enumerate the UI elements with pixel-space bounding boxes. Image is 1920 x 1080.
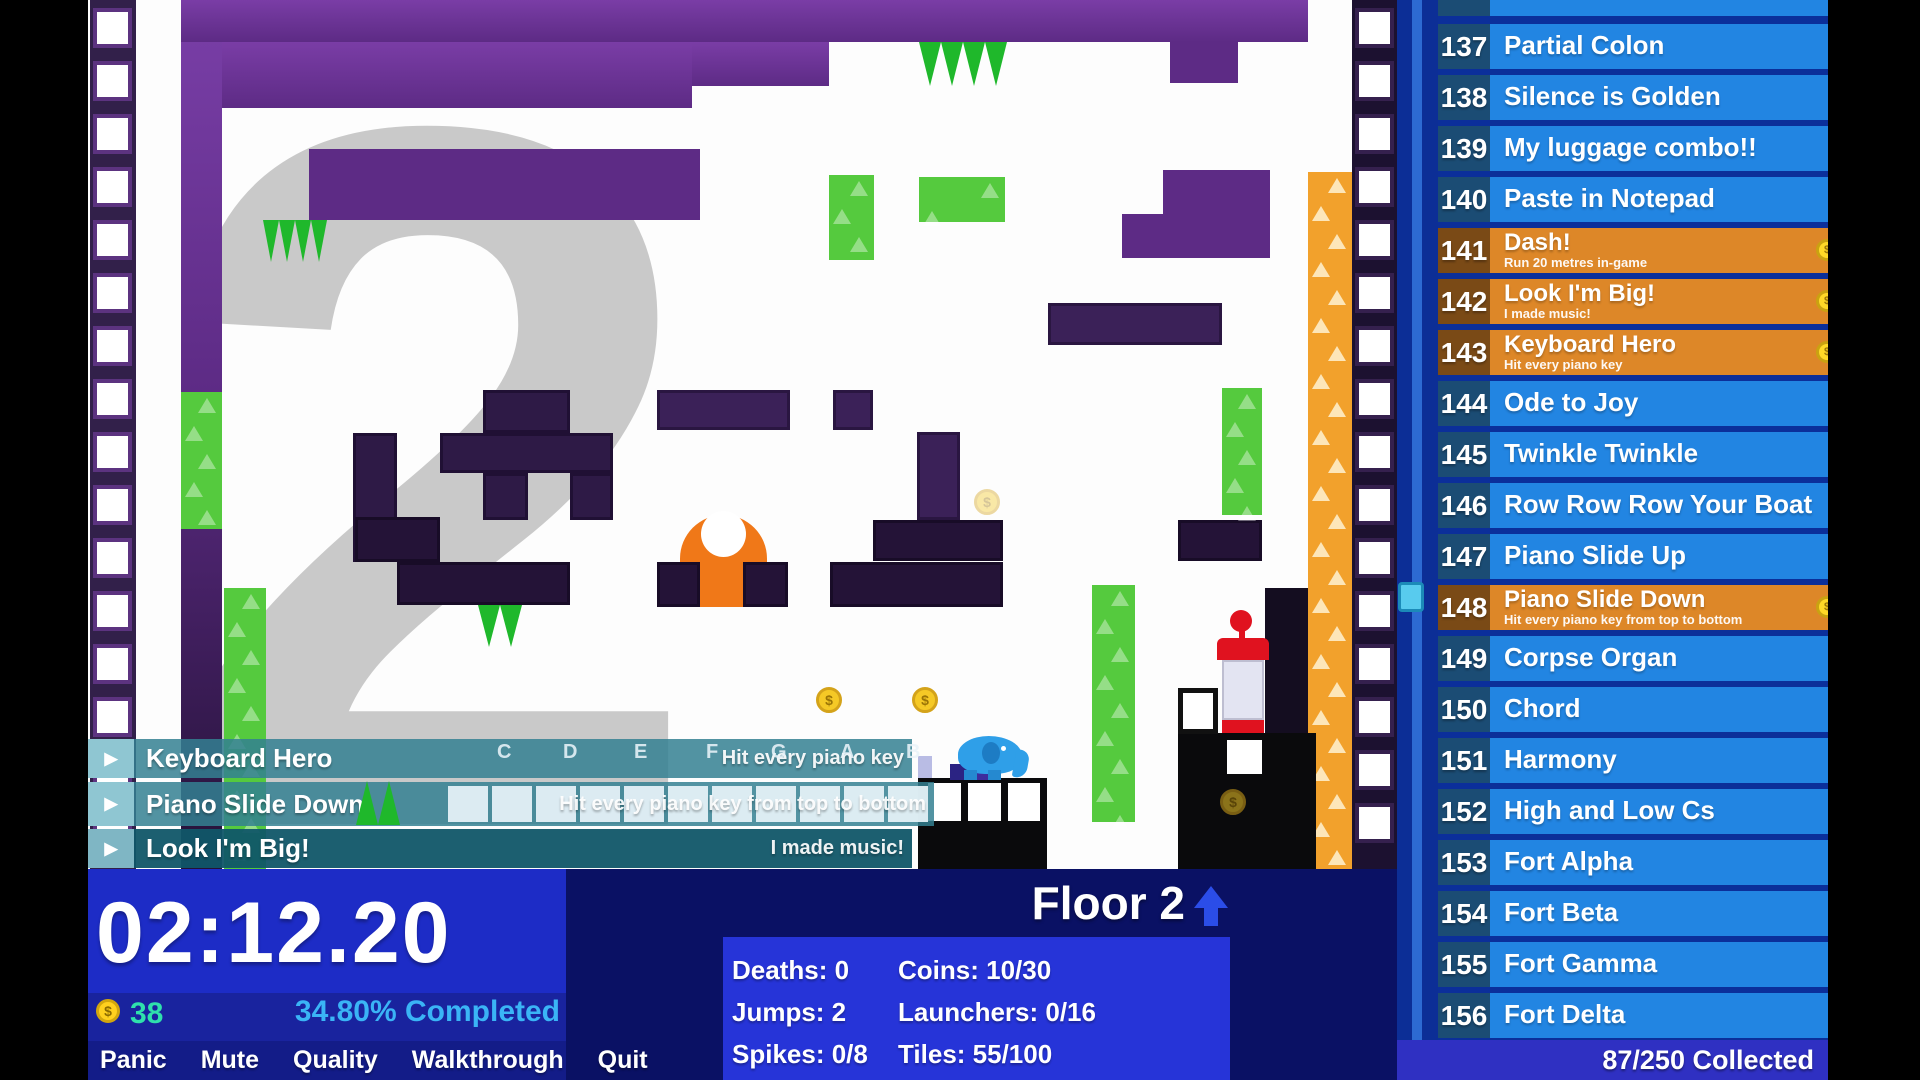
green-pad xyxy=(181,392,222,529)
coin-icon: $ xyxy=(1816,239,1828,261)
achievement-banner: ▶ Piano Slide Down Hit every piano key f… xyxy=(88,782,934,826)
tile xyxy=(1355,803,1394,843)
achievement-number: 148 xyxy=(1438,585,1490,630)
achievement-row[interactable]: 149Corpse Organ xyxy=(1438,636,1828,681)
stat-value: Spikes: 0/8 xyxy=(732,1039,868,1070)
achievement-title: High and Low Cs xyxy=(1504,795,1715,826)
stat-value: Tiles: 55/100 xyxy=(898,1039,1052,1070)
achievement-number: 146 xyxy=(1438,483,1490,528)
platform xyxy=(743,562,788,607)
achievement-title: Silence is Golden xyxy=(1504,81,1721,112)
platform xyxy=(309,149,700,220)
tile xyxy=(1355,61,1394,101)
achievement-row[interactable]: 155Fort Gamma xyxy=(1438,942,1828,987)
achievement-number: 156 xyxy=(1438,993,1490,1038)
piano-letter: A xyxy=(840,741,854,764)
achievement-title: Fort Gamma xyxy=(1504,948,1657,979)
green-pad xyxy=(1092,585,1135,822)
plunger-cap xyxy=(1217,638,1269,660)
stat-value: Coins: 10/30 xyxy=(898,955,1051,986)
achievement-number: 137 xyxy=(1438,24,1490,69)
platform xyxy=(830,562,1003,607)
achievement-banner: ▶ Look I'm Big! I made music! xyxy=(88,829,912,868)
tile xyxy=(93,644,132,684)
achievement-row[interactable]: 150Chord xyxy=(1438,687,1828,732)
achievement-number: 152 xyxy=(1438,789,1490,834)
achievement-row[interactable]: 141Dash!Run 20 metres in-game$ xyxy=(1438,228,1828,273)
achievement-title: Look I'm Big! xyxy=(1504,280,1655,308)
platform xyxy=(440,433,613,473)
platform xyxy=(873,520,1003,561)
tile xyxy=(1355,273,1394,313)
menu-item-panic[interactable]: Panic xyxy=(100,1046,167,1075)
spike xyxy=(311,220,327,262)
statue-head xyxy=(701,511,746,557)
tile xyxy=(1355,485,1394,525)
stat-value: Deaths: 0 xyxy=(732,955,849,986)
tile xyxy=(1355,697,1394,737)
spike xyxy=(941,42,963,86)
stat-value: Jumps: 2 xyxy=(732,997,846,1028)
coin-icon: $ xyxy=(1816,596,1828,618)
platform xyxy=(657,390,790,430)
piano-letter: D xyxy=(563,741,577,764)
play-icon: ▶ xyxy=(88,739,134,778)
menu-item-quit[interactable]: Quit xyxy=(598,1046,648,1075)
achievement-number: 140 xyxy=(1438,177,1490,222)
achievement-number: 154 xyxy=(1438,891,1490,936)
tile xyxy=(93,326,132,366)
letterbox-right xyxy=(1828,0,1920,1080)
achievement-title: Partial Colon xyxy=(1504,30,1664,61)
green-pad xyxy=(224,588,266,869)
platform xyxy=(1170,42,1238,83)
banner-desc: Hit every piano key xyxy=(722,747,904,770)
tile xyxy=(93,379,132,419)
piano-key xyxy=(492,786,532,822)
spike xyxy=(295,220,311,262)
tile xyxy=(1227,740,1262,774)
floor-up-arrow-icon xyxy=(1194,886,1228,908)
achievement-number: 153 xyxy=(1438,840,1490,885)
floor-up-arrow-icon xyxy=(1204,908,1218,926)
coin: $ xyxy=(816,687,842,713)
achievement-row[interactable]: 140Paste in Notepad xyxy=(1438,177,1828,222)
platform xyxy=(570,473,613,520)
achievement-row-partial xyxy=(1438,0,1828,16)
achievement-row[interactable]: 153Fort Alpha xyxy=(1438,840,1828,885)
achievement-desc: I made music! xyxy=(1504,306,1591,321)
platform xyxy=(181,0,1308,42)
achievement-number: 138 xyxy=(1438,75,1490,120)
green-pad xyxy=(1222,388,1262,515)
tile-strip-right xyxy=(1352,0,1397,869)
green-pad xyxy=(919,177,1005,222)
banner-title: Keyboard Hero xyxy=(146,743,332,774)
tile xyxy=(93,61,132,101)
achievement-row[interactable]: 142Look I'm Big!I made music!$ xyxy=(1438,279,1828,324)
tile xyxy=(1355,167,1394,207)
tile xyxy=(1355,591,1394,631)
letterbox-left xyxy=(0,0,88,1080)
achievement-number: 149 xyxy=(1438,636,1490,681)
achievement-title: Twinkle Twinkle xyxy=(1504,438,1698,469)
elephant-leg xyxy=(988,770,1001,780)
menu-item-walkthrough[interactable]: Walkthrough xyxy=(412,1046,564,1075)
achievement-title: Fort Beta xyxy=(1504,897,1618,928)
banner-desc: I made music! xyxy=(771,837,904,860)
elephant-ear xyxy=(982,742,1000,764)
achievement-title: Paste in Notepad xyxy=(1504,183,1715,214)
tile xyxy=(1355,538,1394,578)
tile xyxy=(1355,644,1394,684)
spike xyxy=(919,42,941,86)
achievement-title: Keyboard Hero xyxy=(1504,331,1676,359)
spike xyxy=(500,605,522,647)
piano-letter: F xyxy=(706,741,718,764)
tile xyxy=(1355,379,1394,419)
achievement-row[interactable]: 152High and Low Cs xyxy=(1438,789,1828,834)
coin-collected: $ xyxy=(974,489,1000,515)
platform xyxy=(692,42,829,86)
achievement-row[interactable]: 147Piano Slide Up xyxy=(1438,534,1828,579)
achievement-title: Row Row Row Your Boat xyxy=(1504,489,1812,520)
spike xyxy=(279,220,295,262)
coin-count: 38 xyxy=(130,997,163,1031)
plunger-body xyxy=(1222,660,1264,720)
achievement-title: Ode to Joy xyxy=(1504,387,1638,418)
achievement-number: 142 xyxy=(1438,279,1490,324)
plunger-ball xyxy=(1230,610,1252,632)
banner-desc: Hit every piano key from top to bottom xyxy=(559,793,926,816)
platform xyxy=(355,517,440,562)
coin-icon: $ xyxy=(1816,341,1828,363)
green-pad xyxy=(829,175,874,260)
spike xyxy=(263,220,279,262)
achievement-number: 150 xyxy=(1438,687,1490,732)
platform xyxy=(833,390,873,430)
achievement-title: Chord xyxy=(1504,693,1581,724)
menu-item-quality[interactable]: Quality xyxy=(293,1046,378,1075)
achievement-title: Piano Slide Up xyxy=(1504,540,1686,571)
achievement-number: 147 xyxy=(1438,534,1490,579)
platform xyxy=(1048,303,1222,345)
completion-percent: 34.80% Completed xyxy=(200,995,560,1029)
tile xyxy=(93,485,132,525)
tile xyxy=(93,8,132,48)
plunger-base xyxy=(1222,720,1264,733)
spike xyxy=(985,42,1007,86)
achievement-number: 144 xyxy=(1438,381,1490,426)
tile xyxy=(1355,114,1394,154)
tile xyxy=(93,220,132,260)
piano-letter: G xyxy=(771,741,787,764)
achievement-desc: Hit every piano key xyxy=(1504,357,1623,372)
elephant-eye xyxy=(1001,746,1006,751)
game-window: 2 $ $ $ xyxy=(0,0,1920,1080)
spike xyxy=(378,781,400,825)
achievement-title: Piano Slide Down xyxy=(1504,586,1705,614)
achievement-desc: Hit every piano key from top to bottom xyxy=(1504,612,1742,627)
platform xyxy=(917,432,960,520)
platform xyxy=(1163,170,1270,214)
achievement-row[interactable]: 139My luggage combo!! xyxy=(1438,126,1828,171)
menu-item-mute[interactable]: Mute xyxy=(201,1046,259,1075)
platform xyxy=(397,562,570,605)
tile xyxy=(968,783,1001,821)
elephant-leg xyxy=(964,770,977,780)
hud-menu: PanicMuteQualityWalkthroughQuit xyxy=(88,1041,566,1080)
achievement-row[interactable]: 148Piano Slide DownHit every piano key f… xyxy=(1438,585,1828,630)
achievement-title: Fort Delta xyxy=(1504,999,1625,1030)
achievement-row[interactable]: 151Harmony xyxy=(1438,738,1828,783)
achievement-row[interactable]: 137Partial Colon xyxy=(1438,24,1828,69)
achievement-number: 151 xyxy=(1438,738,1490,783)
achievement-title: Harmony xyxy=(1504,744,1617,775)
tile xyxy=(93,432,132,472)
achievement-row[interactable]: 156Fort Delta xyxy=(1438,993,1828,1038)
coin-icon: $ xyxy=(1816,290,1828,312)
tile xyxy=(93,167,132,207)
spike xyxy=(478,605,500,647)
tile xyxy=(93,538,132,578)
achievement-number: 155 xyxy=(1438,942,1490,987)
floor-label: Floor 2 xyxy=(800,876,1185,930)
achievement-title: Dash! xyxy=(1504,229,1571,257)
platform xyxy=(483,473,528,520)
spike xyxy=(963,42,985,86)
achievement-title: My luggage combo!! xyxy=(1504,132,1757,163)
tile xyxy=(1355,8,1394,48)
tile xyxy=(1355,432,1394,472)
achievement-number: 145 xyxy=(1438,432,1490,477)
platform xyxy=(657,562,700,607)
coin-collected: $ xyxy=(1220,789,1246,815)
tile xyxy=(93,273,132,313)
stat-value: Launchers: 0/16 xyxy=(898,997,1096,1028)
platform xyxy=(1178,520,1262,561)
achievement-number: 141 xyxy=(1438,228,1490,273)
tile xyxy=(1355,750,1394,790)
spike xyxy=(356,781,378,825)
achievement-row[interactable]: 143Keyboard HeroHit every piano key$ xyxy=(1438,330,1828,375)
collected-counter: 87/250 Collected xyxy=(1397,1040,1828,1080)
achievement-row[interactable]: 138Silence is Golden xyxy=(1438,75,1828,120)
play-icon: ▶ xyxy=(88,782,134,826)
launcher-block xyxy=(700,562,743,607)
achievement-number: 143 xyxy=(1438,330,1490,375)
coin-icon: $ xyxy=(96,999,120,1023)
coin: $ xyxy=(912,687,938,713)
platform xyxy=(1122,214,1270,258)
achievement-desc: Run 20 metres in-game xyxy=(1504,255,1647,270)
tile xyxy=(1178,688,1218,734)
achievement-row[interactable]: 154Fort Beta xyxy=(1438,891,1828,936)
tile xyxy=(93,591,132,631)
achievement-row[interactable]: 146Row Row Row Your Boat xyxy=(1438,483,1828,528)
tile xyxy=(1355,220,1394,260)
piano-letter: E xyxy=(634,741,647,764)
piano-key xyxy=(448,786,488,822)
achievement-title: Fort Alpha xyxy=(1504,846,1633,877)
tile xyxy=(93,697,132,737)
tile xyxy=(1355,326,1394,366)
achievement-number: 139 xyxy=(1438,126,1490,171)
timer: 02:12.20 xyxy=(96,884,452,983)
piano-letter: B xyxy=(906,741,920,764)
banner-title: Look I'm Big! xyxy=(146,833,310,864)
achievement-title: Corpse Organ xyxy=(1504,642,1677,673)
tile xyxy=(1008,783,1040,821)
tile xyxy=(93,114,132,154)
banner-title: Piano Slide Down xyxy=(146,789,364,820)
play-icon: ▶ xyxy=(88,829,134,868)
platform xyxy=(483,390,570,433)
sidebar-scroll-track[interactable] xyxy=(1412,0,1422,1080)
sidebar-scroll-thumb[interactable] xyxy=(1398,582,1424,612)
piano-letter: C xyxy=(497,741,511,764)
achievement-row[interactable]: 145Twinkle Twinkle xyxy=(1438,432,1828,477)
achievement-row[interactable]: 144Ode to Joy xyxy=(1438,381,1828,426)
platform xyxy=(222,42,692,108)
